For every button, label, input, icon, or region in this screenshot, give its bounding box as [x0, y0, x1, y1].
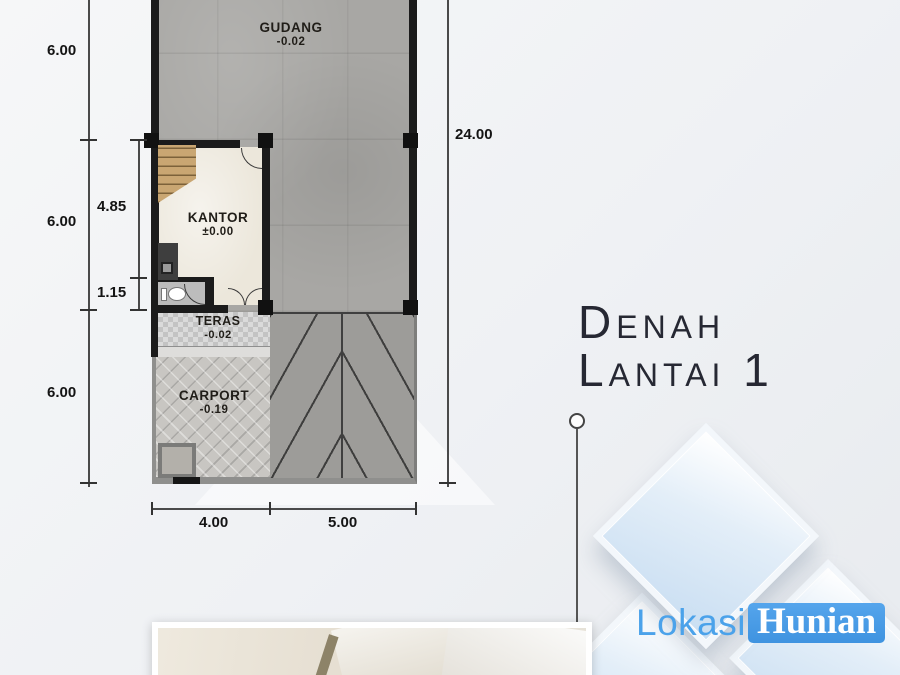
driveway-ramp — [270, 312, 417, 484]
wall-kantor-bottom — [151, 305, 228, 313]
dimension-tick — [80, 482, 97, 484]
room-name: GUDANG — [231, 20, 351, 36]
dimension-tick — [130, 309, 147, 311]
dimension-tick — [130, 277, 147, 279]
dimension-label: 6.00 — [47, 384, 76, 401]
title-line-1: Denah — [578, 298, 868, 346]
floor-plan-page: GUDANG -0.02 KANTOR ±0.00 TERAS -0.02 CA… — [0, 0, 900, 675]
wall-bathroom-stub — [205, 277, 214, 312]
dimension-label: 1.15 — [97, 284, 126, 301]
dimension-label: 6.00 — [47, 42, 76, 59]
dimension-tick — [80, 309, 97, 311]
room-label-kantor: KANTOR ±0.00 — [168, 210, 268, 240]
dimension-tick — [415, 502, 417, 515]
dimension-label: 24.00 — [455, 126, 493, 143]
dimension-line-right — [447, 0, 449, 487]
room-elevation: -0.02 — [168, 329, 268, 342]
brand-text-hunian: Hunian — [748, 603, 885, 644]
dimension-label: 4.00 — [199, 514, 228, 531]
brand-watermark: Lokasi Hunian — [636, 602, 885, 644]
leader-pin-icon — [569, 413, 585, 429]
wall-teras-left — [151, 312, 158, 357]
dimension-label: 4.85 — [97, 198, 126, 215]
driveway-center-line — [341, 314, 343, 478]
leader-line — [576, 429, 578, 625]
dimension-label: 5.00 — [328, 514, 357, 531]
dimension-label: 6.00 — [47, 213, 76, 230]
toilet-icon — [168, 287, 186, 301]
dimension-line-left — [88, 0, 90, 487]
room-elevation: -0.19 — [158, 404, 270, 418]
column — [403, 300, 418, 315]
sink-icon — [161, 262, 173, 274]
dimension-tick — [130, 139, 147, 141]
dimension-tick — [80, 139, 97, 141]
page-title: Denah Lantai 1 — [578, 298, 868, 395]
room-elevation: -0.02 — [231, 36, 351, 50]
room-name: KANTOR — [168, 210, 268, 226]
dimension-tick — [439, 482, 456, 484]
brand-text-lokasi: Lokasi — [636, 602, 746, 644]
gate-strip — [173, 477, 200, 484]
dimension-tick — [151, 502, 153, 515]
wall-right — [409, 0, 417, 312]
toilet-icon — [161, 288, 167, 301]
room-elevation: ±0.00 — [168, 226, 268, 240]
house-photo-thumbnail — [152, 622, 592, 675]
driveway-chevron-right — [342, 314, 414, 478]
dimension-line-bottom — [152, 508, 417, 510]
room-name: TERAS — [168, 314, 268, 329]
room-label-teras: TERAS -0.02 — [168, 314, 268, 342]
dimension-tick — [269, 502, 271, 515]
column — [258, 133, 273, 148]
column — [403, 133, 418, 148]
photo-wall-right — [439, 622, 592, 675]
room-name: CARPORT — [158, 388, 270, 404]
title-line-2: Lantai 1 — [578, 346, 868, 394]
planter-box — [158, 443, 196, 478]
room-label-gudang: GUDANG -0.02 — [231, 20, 351, 50]
dimension-line-inner — [138, 140, 140, 311]
driveway-chevron-left — [270, 314, 342, 478]
room-label-carport: CARPORT -0.19 — [158, 388, 270, 418]
